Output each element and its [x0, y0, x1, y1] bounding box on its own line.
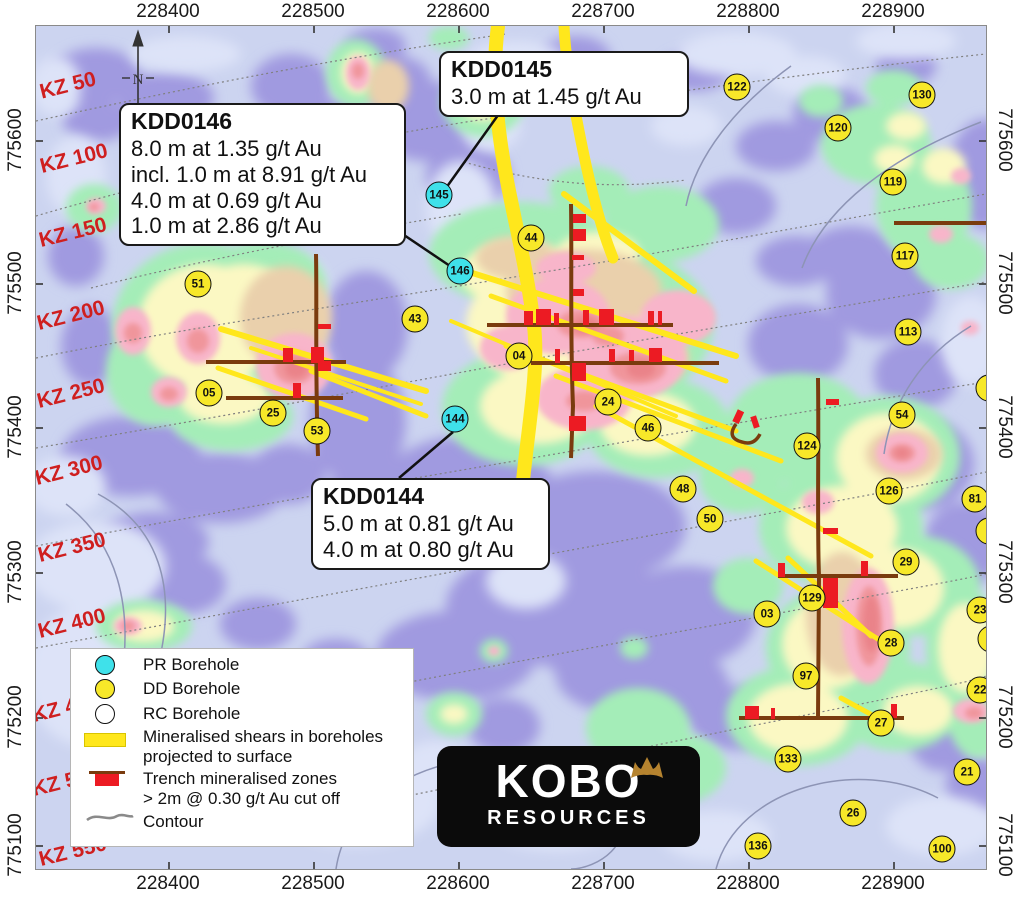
callout-intercept-line: 4.0 m at 0.69 g/t Au — [131, 188, 394, 214]
legend-label-rc: RC Borehole — [143, 704, 240, 724]
borehole-marker-26[interactable]: 26 — [840, 800, 867, 827]
borehole-marker-22[interactable]: 22 — [967, 677, 988, 704]
callout-KDD0144: KDD01445.0 m at 0.81 g/t Au4.0 m at 0.80… — [311, 478, 550, 570]
legend-label-contour: Contour — [143, 812, 203, 832]
x-axis-label-top: 228800 — [716, 1, 779, 23]
borehole-marker-03[interactable]: 03 — [754, 601, 781, 628]
kobo-resources-logo: KOBO RESOURCES — [437, 746, 700, 847]
legend-label-dd: DD Borehole — [143, 679, 240, 699]
borehole-marker-97[interactable]: 97 — [793, 663, 820, 690]
x-axis-label-top: 228900 — [861, 1, 924, 23]
y-axis-label-right: 775400 — [993, 395, 1015, 458]
y-axis-label-left: 775500 — [5, 251, 27, 314]
borehole-marker-29[interactable]: 29 — [893, 549, 920, 576]
callout-intercept-line: 5.0 m at 0.81 g/t Au — [323, 511, 538, 537]
rc-borehole-icon — [95, 704, 115, 724]
borehole-marker-124[interactable]: 124 — [794, 433, 821, 460]
legend-label-pr: PR Borehole — [143, 655, 239, 675]
borehole-marker-144[interactable]: 144 — [442, 406, 469, 433]
borehole-marker-54[interactable]: 54 — [889, 402, 916, 429]
x-axis-label-bottom: 228700 — [571, 873, 634, 895]
borehole-marker-133[interactable]: 133 — [775, 746, 802, 773]
borehole-marker-120[interactable]: 120 — [825, 115, 852, 142]
borehole-marker-81[interactable]: 81 — [962, 486, 988, 513]
borehole-marker-145[interactable]: 145 — [426, 182, 453, 209]
borehole-marker-51[interactable]: 51 — [185, 271, 212, 298]
callout-intercept-line: incl. 1.0 m at 8.91 g/t Au — [131, 162, 394, 188]
borehole-marker-146[interactable]: 146 — [447, 258, 474, 285]
legend-label-shears: Mineralised shears in boreholesprojected… — [143, 727, 383, 767]
callout-KDD0146: KDD01468.0 m at 1.35 g/t Auincl. 1.0 m a… — [119, 103, 406, 246]
callout-intercept-line: 4.0 m at 0.80 g/t Au — [323, 537, 538, 563]
y-axis-label-right: 775100 — [993, 813, 1015, 876]
borehole-marker-117[interactable]: 117 — [892, 243, 919, 270]
borehole-marker-46[interactable]: 46 — [635, 415, 662, 442]
callout-intercept-line: 1.0 m at 2.86 g/t Au — [131, 213, 394, 239]
callout-title: KDD0144 — [323, 483, 538, 511]
callout-KDD0145: KDD01453.0 m at 1.45 g/t Au — [439, 51, 689, 117]
borehole-marker-27[interactable]: 27 — [868, 710, 895, 737]
borehole-marker-44[interactable]: 44 — [518, 225, 545, 252]
dd-borehole-icon — [95, 679, 115, 699]
contour-icon — [85, 810, 135, 824]
x-axis-label-bottom: 228600 — [426, 873, 489, 895]
y-axis-label-left: 775100 — [5, 813, 27, 876]
x-axis-label-top: 228600 — [426, 1, 489, 23]
borehole-marker-130[interactable]: 130 — [909, 82, 936, 109]
borehole-marker-43[interactable]: 43 — [402, 306, 429, 333]
shear-icon — [84, 733, 126, 747]
y-axis-label-left: 775200 — [5, 685, 27, 748]
borehole-marker-24[interactable]: 24 — [595, 389, 622, 416]
x-axis-label-top: 228700 — [571, 1, 634, 23]
y-axis-label-right: 775300 — [993, 540, 1015, 603]
x-axis-label-bottom: 228400 — [136, 873, 199, 895]
trench-icon — [89, 771, 125, 774]
y-axis-label-left: 775400 — [5, 395, 27, 458]
borehole-marker-100[interactable]: 100 — [929, 836, 956, 863]
y-axis-label-right: 775600 — [993, 108, 1015, 171]
map-legend: PR Borehole DD Borehole RC Borehole Mine… — [70, 648, 414, 847]
y-axis-label-right: 775500 — [993, 251, 1015, 314]
callout-title: KDD0146 — [131, 108, 394, 136]
borehole-marker-48[interactable]: 48 — [670, 476, 697, 503]
callout-title: KDD0145 — [451, 56, 677, 84]
borehole-marker-23[interactable]: 23 — [967, 597, 988, 624]
pr-borehole-icon — [95, 655, 115, 675]
borehole-marker-04[interactable]: 04 — [506, 343, 533, 370]
logo-subtitle: RESOURCES — [437, 808, 700, 828]
map-page: N KZ 50KZ 100KZ 150KZ 200KZ 250KZ 300KZ … — [0, 0, 1024, 903]
y-axis-label-left: 775300 — [5, 540, 27, 603]
x-axis-label-top: 228400 — [136, 1, 199, 23]
borehole-marker-05[interactable]: 05 — [196, 380, 223, 407]
borehole-marker-122[interactable]: 122 — [724, 74, 751, 101]
borehole-marker-21[interactable]: 21 — [954, 759, 981, 786]
y-axis-label-right: 775200 — [993, 685, 1015, 748]
borehole-marker-53[interactable]: 53 — [304, 418, 331, 445]
borehole-marker-136[interactable]: 136 — [745, 833, 772, 860]
crown-icon — [629, 756, 665, 780]
legend-label-trench: Trench mineralised zones> 2m @ 0.30 g/t … — [143, 769, 340, 809]
x-axis-label-top: 228500 — [281, 1, 344, 23]
callout-intercept-line: 8.0 m at 1.35 g/t Au — [131, 136, 394, 162]
borehole-marker-113[interactable]: 113 — [895, 319, 922, 346]
y-axis-label-left: 775600 — [5, 108, 27, 171]
x-axis-label-bottom: 228500 — [281, 873, 344, 895]
callout-intercept-line: 3.0 m at 1.45 g/t Au — [451, 84, 677, 110]
x-axis-label-bottom: 228900 — [861, 873, 924, 895]
borehole-marker-129[interactable]: 129 — [799, 585, 826, 612]
borehole-marker-25[interactable]: 25 — [260, 400, 287, 427]
x-axis-label-bottom: 228800 — [716, 873, 779, 895]
svg-text:N: N — [133, 72, 144, 88]
borehole-marker-126[interactable]: 126 — [876, 478, 903, 505]
borehole-marker-28[interactable]: 28 — [878, 630, 905, 657]
borehole-marker-50[interactable]: 50 — [697, 506, 724, 533]
borehole-marker-119[interactable]: 119 — [880, 169, 907, 196]
